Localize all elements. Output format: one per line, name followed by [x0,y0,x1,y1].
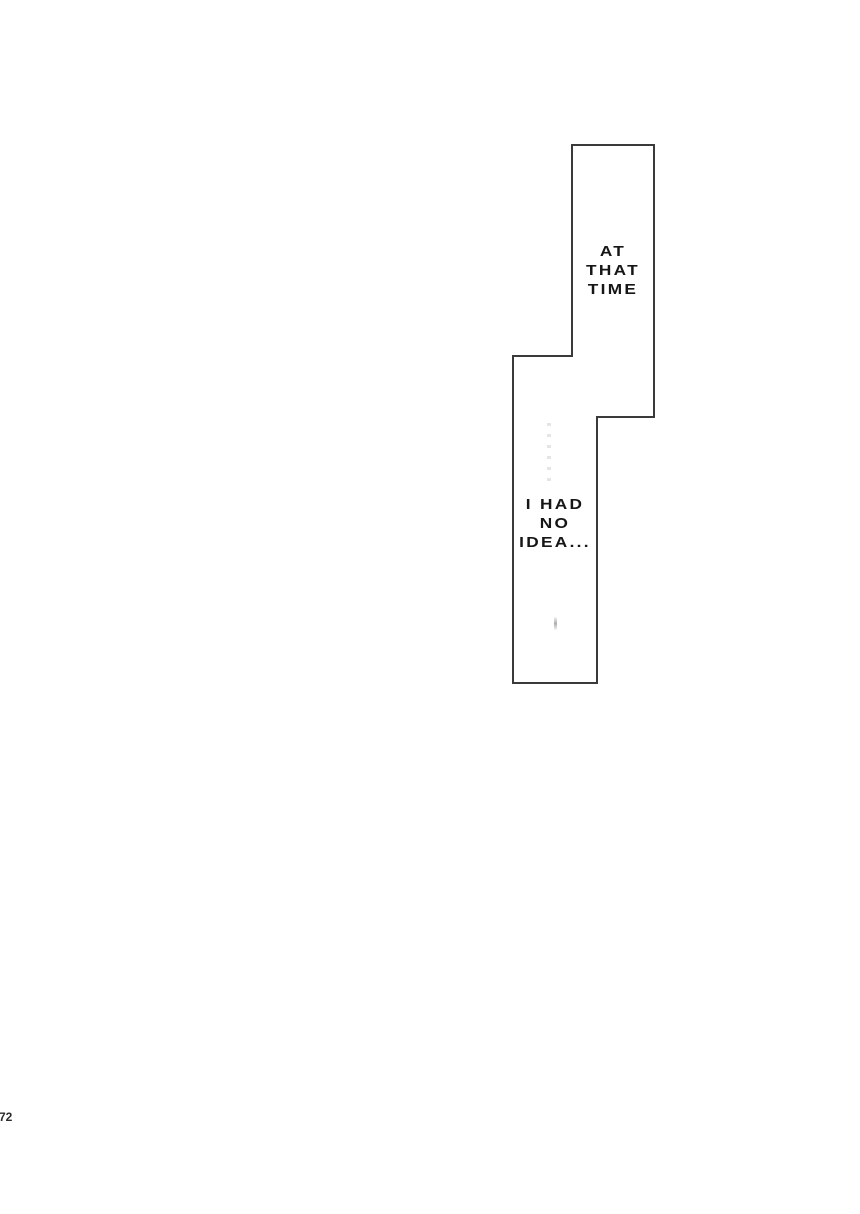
faint-smudge-artifact [554,617,557,630]
bubble-text-line: NO [507,514,604,533]
speech-bubble-shape [513,145,654,683]
faint-erased-text-artifact [547,423,551,483]
bubble-text-line: TIME [566,280,660,299]
bubble-text-line: I HAD [507,495,604,514]
speech-bubble-outline [0,0,860,1214]
speech-bubble-bottom-text: I HAD NO IDEA... [507,495,604,552]
page-number: 72 [0,1110,12,1124]
speech-bubble-top-text: AT THAT TIME [566,242,660,299]
bubble-text-line: THAT [566,261,660,280]
manga-page: AT THAT TIME I HAD NO IDEA... 72 [0,0,860,1214]
bubble-text-line: IDEA... [507,533,604,552]
bubble-text-line: AT [566,242,660,261]
